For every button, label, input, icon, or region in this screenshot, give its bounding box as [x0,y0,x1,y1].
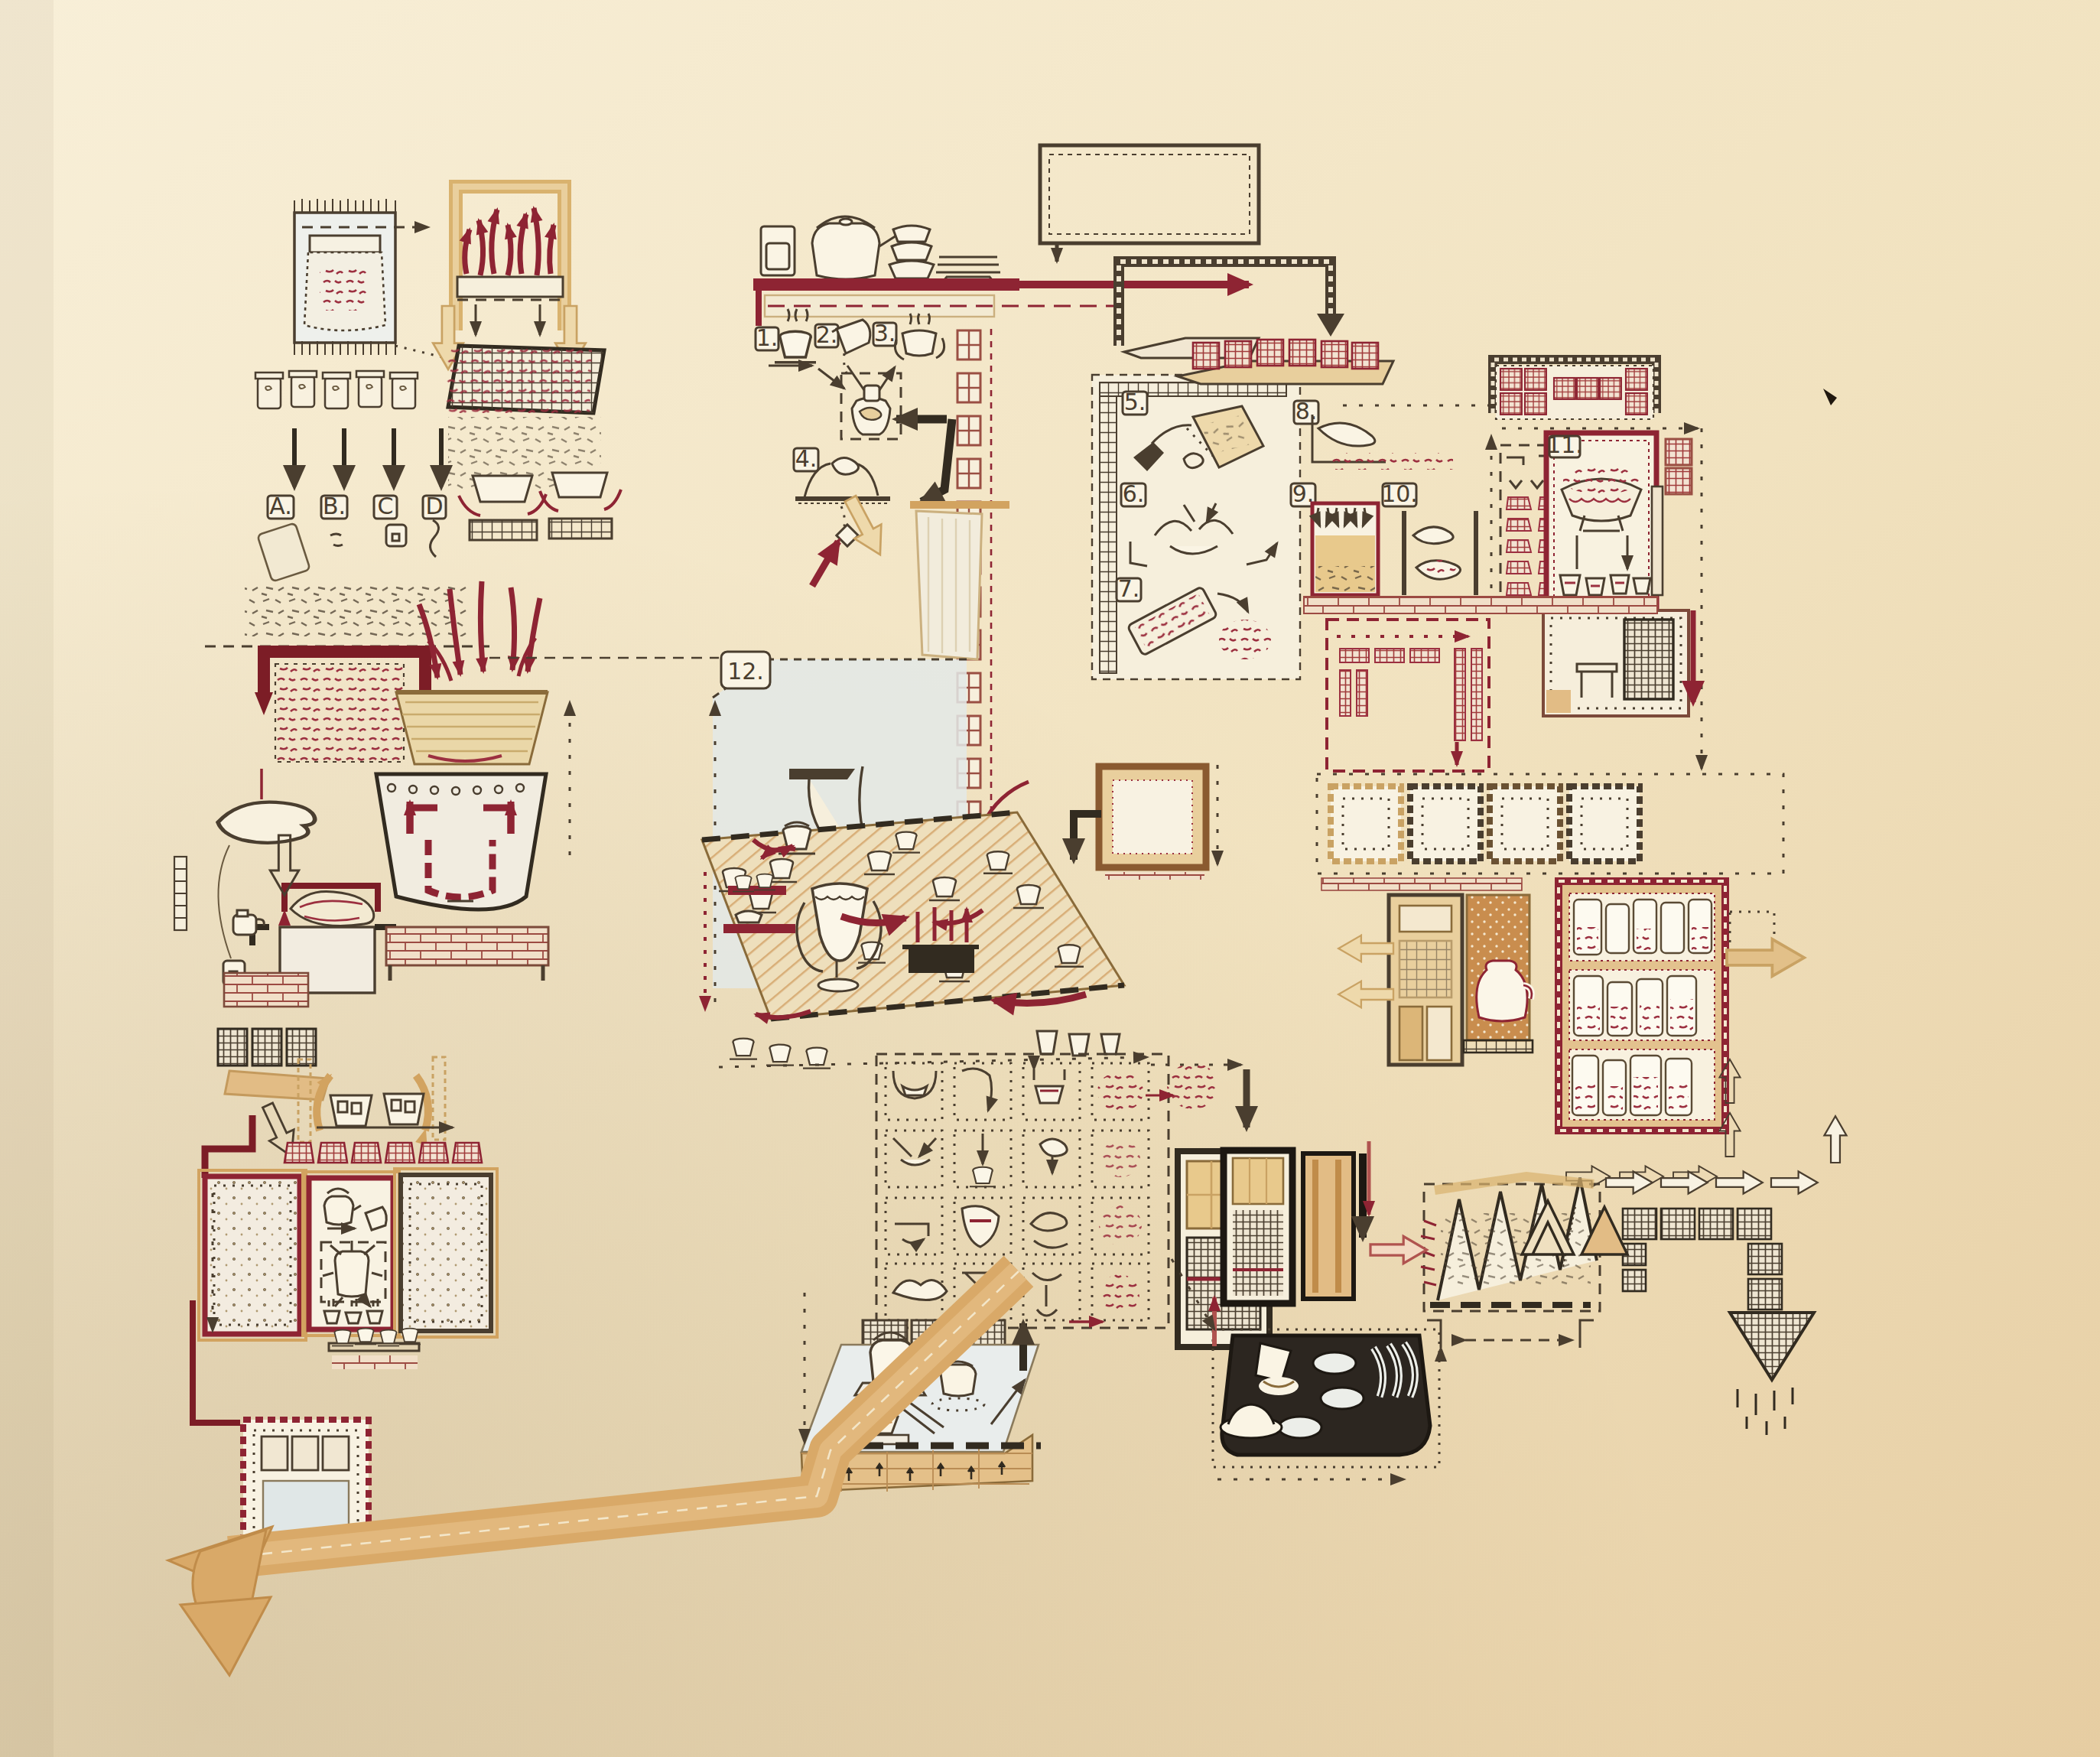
svg-text:6.: 6. [1123,480,1145,507]
svg-text:10.: 10. [1381,480,1418,507]
svg-text:8.: 8. [1295,398,1318,425]
grid-window [1624,620,1673,699]
basket-1 [330,1095,372,1126]
step-label-3: 3. [873,320,896,347]
cabinet-shelf-3 [1569,1049,1715,1120]
panel-label-11: 11. [1546,431,1583,458]
region-label-12: 12. [721,652,770,688]
sample-teabag [386,525,406,546]
dotted-room-left [199,1170,306,1340]
svg-text:11.: 11. [1546,431,1583,458]
svg-text:C: C [378,493,394,519]
cabinet-shelf-2 [1569,970,1715,1040]
cabinet-shelf-1 [1569,893,1715,961]
sample-label-b: B. [321,493,347,519]
teapot-radiating [335,1251,369,1297]
svg-text:4.: 4. [795,445,818,472]
tally-strip [174,857,187,930]
tan-door [1303,1153,1354,1299]
svg-text:5.: 5. [1124,389,1146,415]
stacked-bowls [889,226,934,278]
step-label-2: 2. [815,321,838,348]
panel-label-5: 5. [1123,389,1147,415]
sample-label-d: D [423,493,446,519]
leaf-scatter-rows [245,583,466,636]
step-label-1: 1. [756,324,779,351]
sample-label-a: A. [268,493,294,519]
sample-label-c: C [374,493,397,519]
frame-3 [1490,786,1560,861]
panel-11: 11. [1546,431,1656,607]
svg-text:1.: 1. [756,324,779,351]
tea-process-diagram: A. B. C D [0,0,2100,1757]
kettle-room-center [303,1172,399,1336]
svg-text:12.: 12. [727,658,764,685]
step-label-4: 4. [794,445,818,472]
svg-text:3.: 3. [874,320,896,347]
svg-text:A.: A. [269,493,292,519]
panel-label-8: 8. [1294,398,1318,425]
door [1389,895,1462,1065]
svg-text:2.: 2. [816,321,838,348]
frame-2 [1410,786,1481,861]
storage-jar [761,226,795,275]
teapot-niche [1464,895,1533,1053]
brick-divider [1304,597,1657,613]
panel-label-6: 6. [1121,480,1146,507]
small-kettle [324,1196,353,1225]
frame-1 [1331,786,1401,861]
frame-4 [1569,786,1640,861]
jar-cabinet [1559,881,1725,1131]
svg-text:7.: 7. [1118,575,1140,602]
svg-text:B.: B. [323,493,346,519]
panel-5-7: 5. 6. 7. [1092,375,1300,679]
dotted-room-right [395,1169,497,1337]
paper-left-edge-shadow [0,0,54,1757]
loose-leaf-pile [1167,1063,1219,1109]
panel-label-10: 10. [1381,480,1418,507]
svg-text:D: D [425,493,443,519]
panel-label-7: 7. [1117,575,1141,602]
basket-2 [384,1094,424,1124]
